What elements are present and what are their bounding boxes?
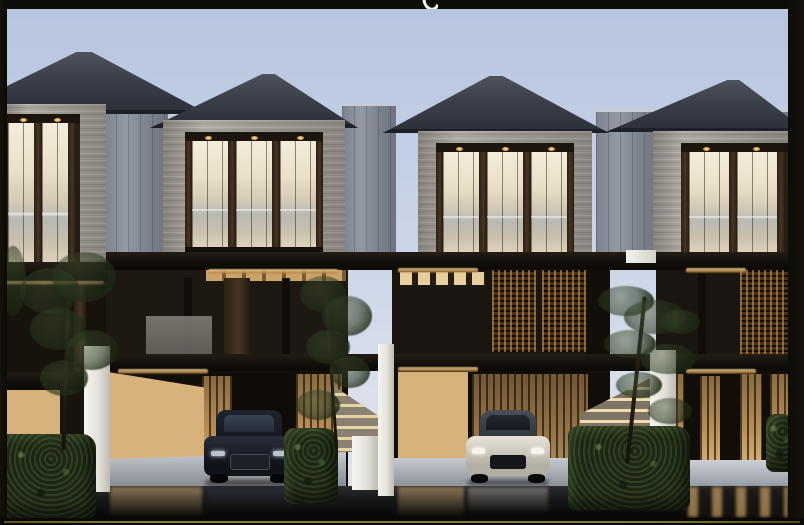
unit-3-balcony-glazing: [531, 152, 567, 252]
unit-2-balcony-glazing: [192, 141, 228, 247]
unit-3-transom-lights: [400, 272, 486, 285]
unit-2-balcony-glazing: [280, 141, 316, 247]
unit-3-lattice-screen: [492, 270, 536, 352]
unit-2-balcony-glazing: [236, 141, 272, 247]
unit-1-balcony-soffit: [6, 114, 80, 123]
olive-accent-line: [4, 521, 800, 523]
unit-2-cove-light: [208, 269, 338, 274]
party-wall-metal-a-b: [104, 92, 168, 272]
unit-2-balcony-soffit: [185, 132, 323, 141]
party-wall-metal-b-c: [342, 104, 396, 268]
party-wall-metal-c-d: [596, 110, 660, 268]
unit-4-carport-cove: [686, 369, 756, 374]
hedge-unit-1: [0, 434, 96, 518]
suv-shadow: [206, 480, 292, 485]
reflection-streak: [208, 487, 292, 511]
downlight: [456, 147, 463, 151]
car-headlight: [531, 448, 544, 454]
stair-sidewall-white: [352, 436, 378, 490]
timber-post: [34, 123, 42, 263]
unit-4-lit-panel: [700, 376, 720, 466]
sports-car-silver: [466, 408, 550, 484]
unit-4-third-floor: [653, 131, 790, 265]
unit-4-cove-light: [686, 268, 746, 273]
unit-1-balcony-recess: [6, 114, 80, 270]
timber-panel: [224, 278, 250, 358]
timber-post: [272, 141, 280, 247]
downlight: [548, 147, 555, 151]
timber-post: [68, 123, 76, 263]
timber-post: [729, 152, 737, 252]
unit-1-balcony-glazing: [42, 123, 68, 263]
suv-headlight: [211, 451, 225, 456]
unit-4-lattice-screen: [740, 270, 790, 354]
unit-2-balcony-recess: [185, 132, 323, 254]
architectural-rendering: [0, 0, 804, 525]
car-headlight: [472, 448, 485, 454]
cropped-caption-glyph: [421, 0, 438, 9]
downlight: [753, 147, 760, 151]
downlight: [20, 118, 27, 122]
suv-windshield: [224, 415, 274, 432]
stair-wall-top-white: [626, 250, 656, 263]
car-shadow: [468, 480, 548, 485]
party-wall-white-2-3: [378, 344, 394, 496]
unit-2-third-floor: [163, 120, 345, 260]
mullion: [698, 274, 706, 354]
unit-4-lit-panel: [740, 374, 762, 466]
unit-3-balcony-soffit: [436, 143, 574, 152]
reflection-streak: [110, 487, 202, 517]
reflection-streak: [688, 487, 788, 517]
suv-dark: [204, 410, 294, 484]
downlight: [205, 136, 212, 140]
timber-post: [681, 152, 689, 252]
unit-4-balcony-glazing: [737, 152, 777, 252]
frame-bottom: [0, 518, 804, 525]
car-windshield: [486, 415, 530, 430]
unit-4-balcony-recess: [681, 143, 790, 259]
timber-post: [567, 152, 574, 252]
reflection-streak: [468, 487, 548, 513]
mullion: [282, 278, 290, 358]
unit-3-second-floor: [392, 266, 610, 356]
unit-3-third-floor: [418, 131, 592, 265]
downlight: [502, 147, 509, 151]
unit-3-lattice-screen: [542, 270, 586, 352]
timber-post: [228, 141, 236, 247]
unit-1-third-floor: [6, 104, 106, 276]
downlight: [703, 147, 710, 151]
hedge-unit-2-3: [284, 428, 338, 504]
car-grille: [490, 455, 526, 469]
unit-4-balcony-glazing: [689, 152, 729, 252]
timber-post: [523, 152, 531, 252]
timber-post: [777, 152, 785, 252]
frame-right: [788, 0, 804, 525]
unit-3-glazing: [400, 287, 486, 349]
unit-2-carport-cove: [118, 369, 208, 374]
timber-post: [185, 141, 192, 247]
downlight: [54, 118, 61, 122]
downlight: [251, 136, 258, 140]
unit-2-interior-art-wall: [146, 316, 212, 356]
unit-3-cove-light: [398, 268, 478, 273]
unit-4-glazing: [706, 276, 736, 354]
unit-1-balcony-glazing: [8, 123, 34, 263]
unit-3-balcony-glazing: [443, 152, 479, 252]
frame-top: [0, 0, 804, 9]
letter-descender-icon: [421, 0, 438, 9]
unit-3-carport-cove: [398, 367, 478, 372]
timber-post: [316, 141, 323, 247]
suv-grille: [230, 454, 270, 470]
reflection-streak: [398, 487, 464, 517]
unit-4-balcony-soffit: [681, 143, 790, 152]
downlight: [297, 136, 304, 140]
frame-left: [0, 0, 7, 525]
unit-3-balcony-glazing: [487, 152, 523, 252]
timber-post: [436, 152, 443, 252]
unit-3-balcony-recess: [436, 143, 574, 259]
unit-2-glazing: [250, 280, 282, 358]
timber-post: [479, 152, 487, 252]
